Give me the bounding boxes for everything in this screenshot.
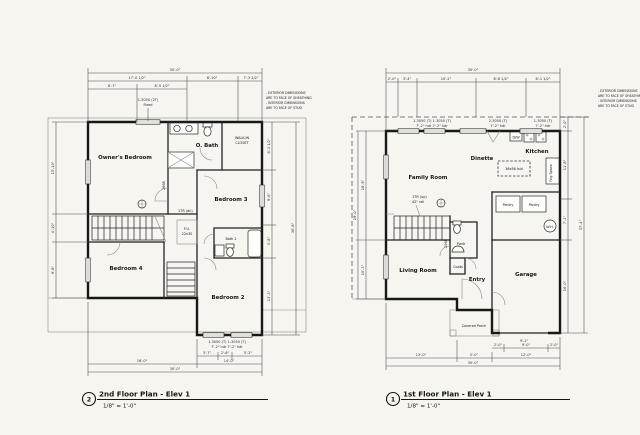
window [203, 333, 224, 337]
floor-plan-drawing: 30'-0" 17'-0 1/2" 8'-10" 7'-3 1/2" 8'-7"… [0, 0, 640, 435]
dim-text: 30'-0" [468, 68, 479, 72]
dim-text: 30'-0" [170, 68, 181, 72]
note-line: ARE TO FACE OF STUD [598, 104, 634, 108]
dim-text: 6'-1 1/2" [535, 77, 550, 81]
window-tag: Fixed [143, 103, 152, 107]
room-label-coats: Coats [453, 265, 463, 269]
drawing-sheet: 30'-0" 17'-0 1/2" 8'-10" 7'-3 1/2" 8'-7"… [0, 0, 640, 435]
plan2-dimension-note: - EXTERIOR DIMENSIONS ARE TO FACE OF SHE… [266, 91, 312, 110]
dim-text: 18'-9" [361, 179, 365, 190]
window-tag: 1-3050 (T) [534, 119, 553, 123]
note-line: ARE TO FACE OF STUD [266, 106, 302, 110]
dim-text: 9'-0" [522, 343, 531, 347]
island-label: 36x56 Isld [505, 167, 523, 171]
dim-text: 12'-0" [521, 353, 532, 357]
dim-text: 13'-3" [267, 290, 271, 301]
dim-text: 5'-2" [244, 351, 253, 355]
room-label-bath2: Bath 2 [225, 237, 236, 241]
window-tag: 2-3050 (T) [489, 119, 508, 123]
door-tag: 2668 [162, 181, 166, 190]
dim-text: 5'-0" [470, 353, 479, 357]
window [398, 129, 419, 133]
plan1-dimension-note: - EXTERIOR DIMENSIONS ARE TO FACE OF SHE… [598, 89, 640, 108]
plan2-title-block: 2 2nd Floor Plan - Elev 1 1/8" = 1'-0" [83, 390, 269, 410]
door-tag: 2068 [444, 239, 448, 248]
attic-access-label: F.U. [184, 227, 190, 231]
note-line: - EXTERIOR DIMENSIONS [266, 91, 306, 95]
plan-title: 1st Floor Plan - Elev 1 [403, 390, 492, 399]
plan-number: 1 [391, 396, 395, 404]
window [460, 129, 486, 133]
plan1-title-block: 1 1st Floor Plan - Elev 1 1/8" = 1'-0" [387, 390, 571, 410]
plan2-doors [107, 148, 217, 270]
dim-text: 3'-7" [203, 351, 212, 355]
note-line: - INTERIOR DIMENSIONS [598, 99, 637, 103]
window-tag: 7'-2" hdr 7'-2" hdr [416, 124, 448, 128]
dim-text: 5'-8" [267, 236, 271, 245]
vanity [215, 245, 224, 256]
room-label-entry: Entry [469, 277, 486, 283]
dim-text: 8'-10" [207, 76, 218, 80]
toilet [203, 123, 212, 127]
plan1-stairs [386, 214, 450, 240]
window [231, 333, 252, 337]
window [384, 255, 388, 279]
dim-text: 16'-0" [563, 280, 567, 291]
window-tag: 1-3050 (2T) [138, 98, 159, 102]
window [384, 155, 388, 179]
room-label-bedroom4: Bedroom 4 [110, 266, 143, 272]
room-label-kitchen: Kitchen [525, 149, 548, 155]
dim-text: 2'-0" [388, 77, 397, 81]
first-floor-plan: 30'-0" 2'-0" 3'-4" 10'-2" 8'-6 1/2" 6'-1… [352, 68, 640, 410]
room-label-covered-porch: Covered Porch [462, 324, 487, 328]
dishwasher-label: D/W [512, 136, 520, 140]
window-tag: 7'-2" hdr 7'-2" hdr [211, 345, 243, 349]
dim-text: 4'-10" [51, 222, 55, 233]
tub [248, 230, 261, 257]
room-label-pwdr: Pwdr [457, 242, 466, 246]
dim-text: 7'-3 1/2" [243, 76, 258, 80]
window [260, 185, 264, 207]
dim-text: 14'-0" [224, 359, 235, 363]
plan-number: 2 [87, 396, 91, 404]
plan-scale: 1/8" = 1'-0" [103, 404, 136, 410]
dim-text: 7'-1" [563, 215, 567, 224]
room-label-owners-bedroom: Owner's Bedroom [98, 155, 152, 161]
water-heater-label: W.H. [546, 225, 554, 229]
dim-text: 8'-6 1/2" [493, 77, 508, 81]
dim-text: 3'-4" [403, 77, 412, 81]
dim-text: 8'-5 1/2" [154, 84, 169, 88]
window [424, 129, 445, 133]
dim-text: 29'-0" [353, 209, 357, 220]
dim-text: 36'-8" [291, 222, 295, 233]
pantry-label: Pantry [529, 203, 540, 207]
dim-text: 37'-4" [579, 219, 583, 230]
note-line: ARE TO FACE OF SHEATHING [598, 94, 640, 98]
window-tag: 1-3050 (T) 1-3050 (T) [413, 119, 452, 123]
window-tag: 1-3050 (T) 1-3050 (T) [208, 340, 247, 344]
stair-note: 17R (dn) [178, 209, 193, 213]
dim-text: 30'-0" [468, 361, 479, 365]
dim-text: 8'-7" [108, 84, 117, 88]
room-label-o-bath: O. Bath [196, 143, 219, 149]
dim-text: 9'-6" [267, 192, 271, 201]
second-floor-plan: 30'-0" 17'-0 1/2" 8'-10" 7'-3 1/2" 8'-7"… [48, 68, 312, 410]
dim-text: 17'-0 1/2" [128, 76, 146, 80]
window [520, 129, 542, 133]
sink [452, 246, 464, 252]
frig-label: Frig Space [549, 164, 553, 182]
pantry-label: Pantry [503, 203, 514, 207]
dim-text: 13'-0" [416, 353, 427, 357]
window-tag: 7'-2" hdr [535, 124, 551, 128]
plan-title: 2nd Floor Plan - Elev 1 [99, 390, 190, 399]
dim-text: 16'-0" [137, 359, 148, 363]
dim-text: 2'-0" [494, 343, 503, 347]
note-line: - INTERIOR DIMENSIONS [266, 101, 305, 105]
room-label-walkin-closet: WALK-IN [235, 136, 249, 140]
rail-note: 42" rail [412, 200, 424, 204]
room-label-garage: Garage [515, 272, 537, 278]
note-line: ARE TO FACE OF SHEATHING [266, 96, 312, 100]
dim-text: 10'-2" [441, 77, 452, 81]
room-label-dinette: Dinette [471, 156, 494, 162]
dim-text: 2'-6" [221, 351, 230, 355]
dim-text: 2'-0" [563, 119, 567, 128]
stair-note: 17R (up) [412, 195, 427, 199]
dim-text: 11'-8" [563, 159, 567, 170]
dim-text: 9'-8" [51, 265, 55, 274]
dim-text: 30'-0" [170, 367, 181, 371]
dim-text: 2'-0" [550, 343, 559, 347]
room-label-bedroom2: Bedroom 2 [212, 295, 245, 301]
room-label-living-room: Living Room [399, 268, 437, 274]
window [86, 160, 90, 184]
dim-text: 8'-3 1/2" [267, 138, 271, 153]
room-label-family-room: Family Room [409, 175, 448, 181]
dim-text: 10'-3" [361, 264, 365, 275]
room-label-bedroom3: Bedroom 3 [215, 197, 248, 203]
window-tag: 7'-2" hdr [490, 124, 506, 128]
dim-text: 15'-10" [51, 161, 55, 174]
room-label-walkin-closet: CLOSET [235, 141, 249, 145]
note-line: - EXTERIOR DIMENSIONS [598, 89, 638, 93]
window [86, 258, 90, 282]
plan-scale: 1/8" = 1'-0" [407, 404, 440, 410]
attic-access-label: 22x30 [182, 232, 193, 236]
